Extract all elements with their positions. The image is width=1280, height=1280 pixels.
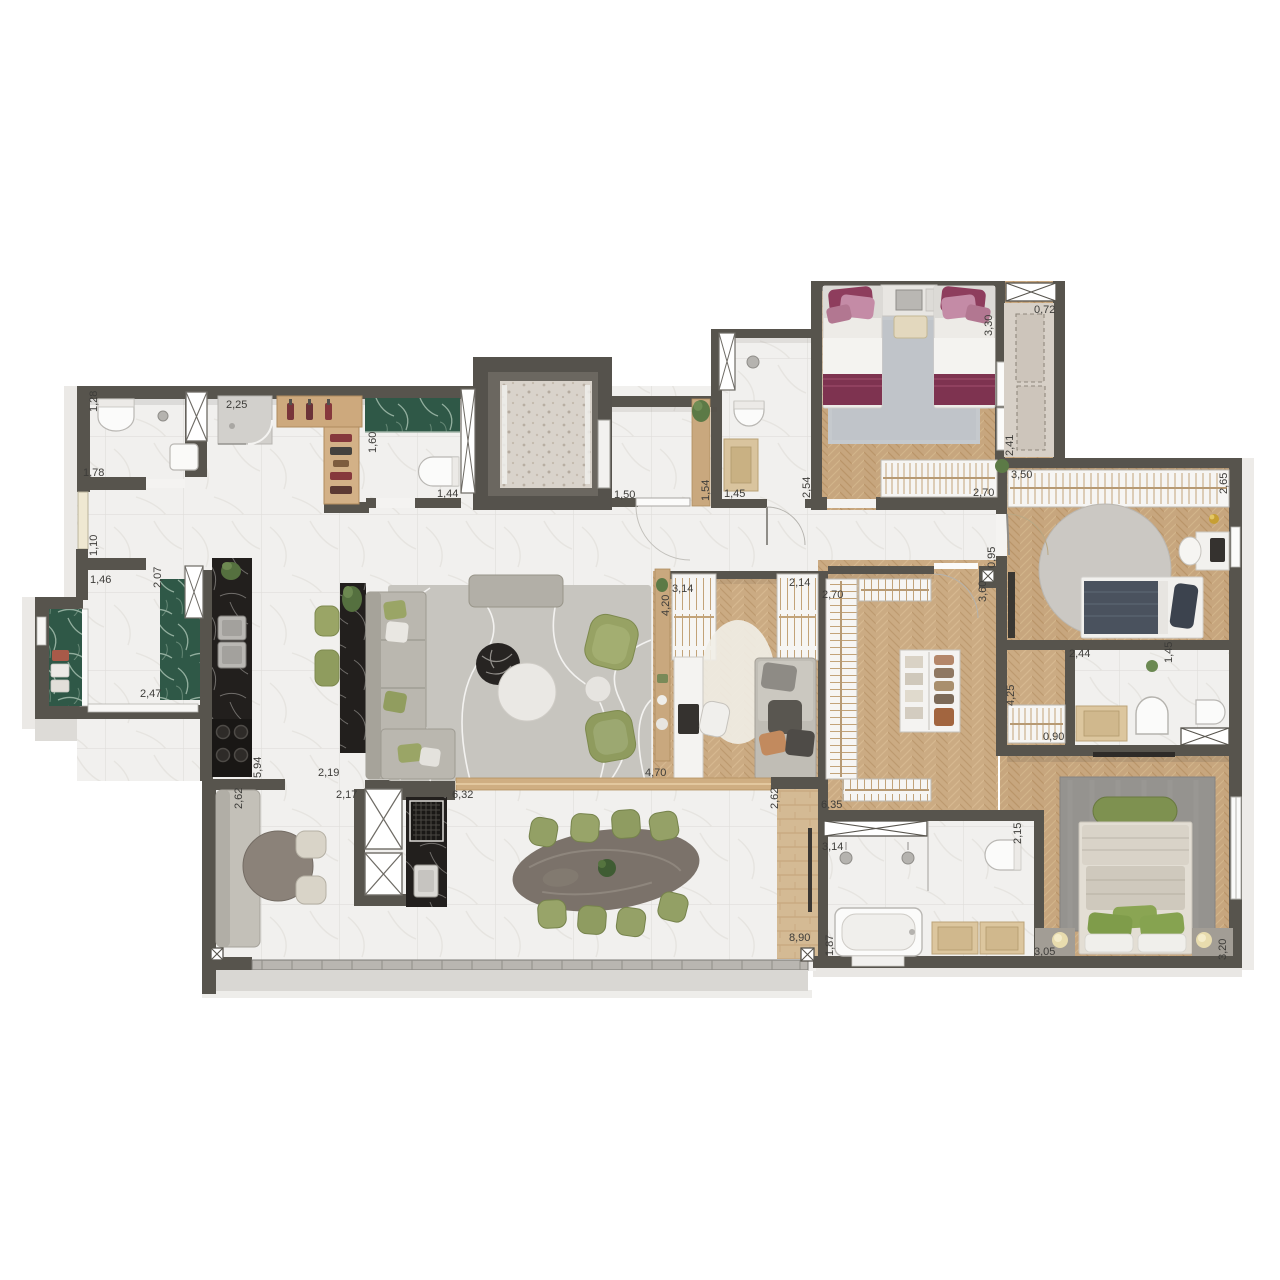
svg-text:2,25: 2,25 [226, 399, 247, 411]
svg-text:0,90: 0,90 [1043, 731, 1064, 743]
svg-text:2,70: 2,70 [822, 589, 843, 601]
svg-text:1,45: 1,45 [724, 488, 745, 500]
svg-text:5,94: 5,94 [252, 757, 264, 778]
svg-text:4,20: 4,20 [660, 595, 672, 616]
svg-text:6,35: 6,35 [821, 799, 842, 811]
svg-text:1,87: 1,87 [824, 935, 836, 956]
svg-text:2,41: 2,41 [1004, 435, 1016, 456]
svg-text:2,17: 2,17 [336, 789, 357, 801]
svg-text:1,50: 1,50 [614, 489, 635, 501]
svg-text:3,14: 3,14 [822, 841, 843, 853]
svg-text:2,47: 2,47 [140, 688, 161, 700]
svg-text:3,20: 3,20 [1217, 939, 1229, 960]
svg-text:0,72: 0,72 [1034, 304, 1055, 316]
svg-text:1,46: 1,46 [90, 574, 111, 586]
svg-text:2,62: 2,62 [769, 788, 781, 809]
svg-text:1,45: 1,45 [1163, 642, 1175, 663]
svg-text:2,07: 2,07 [152, 567, 164, 588]
svg-text:2,19: 2,19 [318, 767, 339, 779]
svg-text:1,54: 1,54 [700, 480, 712, 501]
svg-text:1,28: 1,28 [88, 391, 100, 412]
svg-text:1,78: 1,78 [83, 467, 104, 479]
svg-text:2,70: 2,70 [973, 487, 994, 499]
svg-text:3,50: 3,50 [1011, 469, 1032, 481]
svg-text:4,70: 4,70 [645, 767, 666, 779]
svg-text:2,62: 2,62 [233, 788, 245, 809]
svg-text:1,10: 1,10 [88, 535, 100, 556]
svg-text:2,65: 2,65 [1218, 473, 1230, 494]
svg-text:2,15: 2,15 [1012, 823, 1024, 844]
svg-text:2,14: 2,14 [789, 577, 810, 589]
svg-text:3,14: 3,14 [672, 583, 693, 595]
svg-text:4,25: 4,25 [1005, 685, 1017, 706]
svg-text:8,90: 8,90 [789, 932, 810, 944]
svg-text:1,60: 1,60 [367, 432, 379, 453]
svg-text:2,54: 2,54 [801, 477, 813, 498]
svg-text:3,60: 3,60 [977, 581, 989, 602]
svg-text:0,95: 0,95 [986, 547, 998, 568]
svg-text:1,44: 1,44 [437, 488, 458, 500]
svg-text:3,05: 3,05 [1034, 946, 1055, 958]
svg-text:3,30: 3,30 [983, 315, 995, 336]
svg-text:6,32: 6,32 [452, 789, 473, 801]
svg-text:2,44: 2,44 [1069, 648, 1090, 660]
